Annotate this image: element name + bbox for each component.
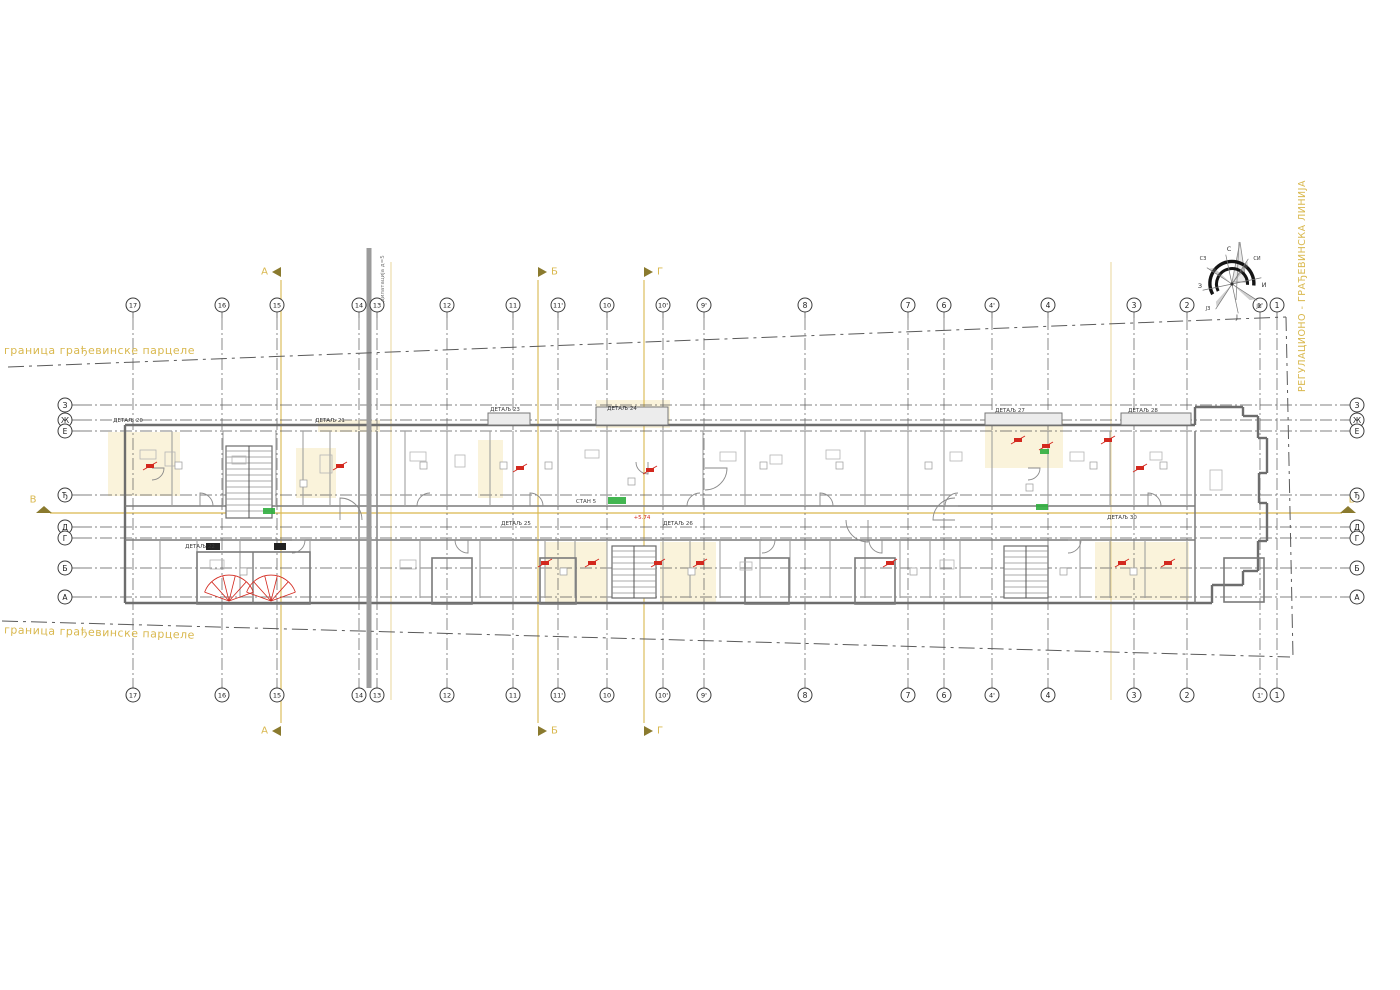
- section-arrow-icon: [272, 267, 281, 277]
- detail-callout-label: ДЕТАЉ 23: [490, 407, 520, 413]
- compass-direction-label: С: [1227, 245, 1232, 253]
- axis-bubble: Ђ: [1350, 488, 1364, 502]
- detail-callout-label: ДЕТАЉ 30: [1107, 515, 1137, 521]
- svg-text:З: З: [63, 401, 68, 410]
- svg-text:1: 1: [1275, 301, 1280, 310]
- section-arrow-icon: [538, 267, 547, 277]
- compass-direction-label: ЈИ: [1255, 304, 1261, 310]
- svg-text:14: 14: [355, 302, 363, 310]
- svg-text:15: 15: [273, 302, 281, 310]
- svg-text:Ђ: Ђ: [61, 491, 68, 500]
- axis-bubble: 13: [370, 688, 384, 702]
- axis-bubble: Б: [58, 561, 72, 575]
- axis-bubble: 2: [1180, 688, 1194, 702]
- section-arrow-icon: [644, 267, 653, 277]
- svg-text:11: 11: [509, 692, 517, 700]
- svg-text:14: 14: [355, 692, 363, 700]
- svg-text:Е: Е: [63, 427, 68, 436]
- axis-bubble: А: [58, 590, 72, 604]
- compass-direction-label: СЗ: [1200, 256, 1207, 262]
- svg-text:12: 12: [443, 692, 451, 700]
- svg-text:15: 15: [273, 692, 281, 700]
- svg-text:4: 4: [1046, 691, 1051, 700]
- compass-direction-label: Ј: [1235, 313, 1238, 321]
- axis-bubble: 16: [215, 688, 229, 702]
- green-highlight-mark: [1036, 504, 1048, 510]
- section-arrow-icon: [272, 726, 281, 736]
- stairwell: [1004, 546, 1048, 598]
- axis-bubble: 3: [1127, 688, 1141, 702]
- svg-text:13: 13: [373, 692, 381, 700]
- detail-callout-label: ДЕТАЉ 25: [501, 521, 531, 527]
- axis-bubble: 17: [126, 298, 140, 312]
- plumbing-riser-mark: [1133, 464, 1147, 472]
- axis-bubble: 11: [506, 688, 520, 702]
- drawing-canvas: ААББГГВВ 171716161515141413131212111111'…: [0, 0, 1400, 990]
- axis-bubble: 7: [901, 688, 915, 702]
- section-arrow-icon: [1340, 506, 1356, 513]
- svg-text:9': 9': [701, 692, 707, 700]
- axis-bubble: 4: [1041, 688, 1055, 702]
- axis-bubble: 8: [798, 298, 812, 312]
- axis-bubble: 4': [985, 688, 999, 702]
- axis-bubble: 11: [506, 298, 520, 312]
- axis-bubble: 1': [1253, 688, 1267, 702]
- plan-annotation-label: +5.74: [634, 515, 651, 521]
- svg-text:8: 8: [803, 691, 808, 700]
- detail-callout-label: ДЕТАЉ 22: [185, 544, 215, 550]
- parcel-boundary-label-top: граница грађевинске парцеле: [4, 344, 195, 357]
- svg-text:А: А: [62, 593, 68, 602]
- compass-direction-label: СИ: [1253, 256, 1260, 262]
- section-arrow-icon: [36, 506, 52, 513]
- section-letter: Г: [657, 726, 663, 737]
- axis-bubble: 11': [551, 688, 565, 702]
- svg-text:8: 8: [803, 301, 808, 310]
- axis-bubble: 2: [1180, 298, 1194, 312]
- axis-bubble: 6: [937, 688, 951, 702]
- plumbing-riser-mark: [643, 466, 657, 474]
- svg-text:6: 6: [942, 301, 947, 310]
- svg-text:3: 3: [1132, 691, 1137, 700]
- axis-bubble: 1: [1270, 298, 1284, 312]
- section-letter: А: [261, 267, 268, 278]
- svg-text:10: 10: [603, 302, 611, 310]
- axis-bubble: Г: [1350, 531, 1364, 545]
- svg-text:10: 10: [603, 692, 611, 700]
- axis-bubble: З: [1350, 398, 1364, 412]
- axis-bubble: 15: [270, 298, 284, 312]
- dilatation-joint-bar: [367, 248, 372, 688]
- svg-text:11': 11': [553, 692, 563, 700]
- svg-text:6: 6: [942, 691, 947, 700]
- section-letter: Б: [551, 726, 558, 737]
- axis-bubble: 12: [440, 298, 454, 312]
- svg-text:Б: Б: [62, 564, 67, 573]
- svg-text:16: 16: [218, 692, 226, 700]
- green-highlight-mark: [1040, 449, 1049, 454]
- axis-bubble: 8: [798, 688, 812, 702]
- svg-text:11': 11': [553, 302, 563, 310]
- svg-text:4': 4': [989, 302, 995, 310]
- svg-text:12: 12: [443, 302, 451, 310]
- detail-callout-label: ДЕТАЉ 21: [315, 418, 345, 424]
- axis-bubble: 9': [697, 688, 711, 702]
- svg-text:Б: Б: [1354, 564, 1359, 573]
- svg-text:11: 11: [509, 302, 517, 310]
- detail-callout-label: ДЕТАЉ 26: [663, 521, 693, 527]
- svg-text:Ђ: Ђ: [1353, 491, 1360, 500]
- axis-bubble: 10: [600, 688, 614, 702]
- svg-text:2: 2: [1185, 691, 1190, 700]
- detail-callout-label: ДЕТАЉ 27: [995, 408, 1025, 414]
- compass-direction-label: ЈЗ: [1205, 306, 1211, 312]
- axis-bubble: 15: [270, 688, 284, 702]
- axis-bubble: А: [1350, 590, 1364, 604]
- stairwell: [612, 546, 656, 598]
- svg-text:17: 17: [129, 692, 137, 700]
- axis-bubble: Е: [58, 424, 72, 438]
- svg-text:1: 1: [1275, 691, 1280, 700]
- svg-text:4: 4: [1046, 301, 1051, 310]
- detail-callout-label: ДЕТАЉ 20: [113, 418, 143, 424]
- green-highlight-mark: [608, 497, 626, 504]
- svg-text:7: 7: [906, 691, 911, 700]
- axis-bubble: 12: [440, 688, 454, 702]
- stairwell: [226, 446, 272, 518]
- svg-text:3: 3: [1132, 301, 1137, 310]
- axis-bubble: 10': [656, 688, 670, 702]
- svg-text:4': 4': [989, 692, 995, 700]
- compass-direction-label: З: [1198, 282, 1202, 290]
- axis-bubble: Ђ: [58, 488, 72, 502]
- plumbing-riser-mark: [1101, 436, 1115, 444]
- axis-bubble: 7: [901, 298, 915, 312]
- axis-bubble: 16: [215, 298, 229, 312]
- svg-text:Г: Г: [1355, 534, 1360, 543]
- svg-text:З: З: [1355, 401, 1360, 410]
- svg-text:10': 10': [658, 692, 668, 700]
- plumbing-riser-mark: [513, 464, 527, 472]
- axis-bubble: З: [58, 398, 72, 412]
- svg-text:А: А: [1354, 593, 1360, 602]
- dilatation-joint-label: дилатација д=5: [380, 255, 386, 302]
- axis-bubble: 9': [697, 298, 711, 312]
- section-arrow-icon: [644, 726, 653, 736]
- svg-text:7: 7: [906, 301, 911, 310]
- svg-text:9': 9': [701, 302, 707, 310]
- plan-annotation-label: СТАН 5: [576, 499, 596, 505]
- svg-text:13: 13: [373, 302, 381, 310]
- detail-callout-label: ДЕТАЉ 24: [607, 406, 637, 412]
- axis-bubble: 1: [1270, 688, 1284, 702]
- axis-bubble: 11': [551, 298, 565, 312]
- svg-text:10': 10': [658, 302, 668, 310]
- section-letter: А: [261, 726, 268, 737]
- axis-bubble: 17: [126, 688, 140, 702]
- compass-direction-label: И: [1262, 281, 1267, 289]
- floor-plan-drawing: ААББГГВВ 171716161515141413131212111111'…: [0, 0, 1400, 990]
- axis-bubble: Г: [58, 531, 72, 545]
- axis-bubble: 14: [352, 298, 366, 312]
- axis-bubble: 10: [600, 298, 614, 312]
- regulation-line-label: РЕГУЛАЦИОНО - ГРАЂЕВИНСКА ЛИНИЈА: [1297, 180, 1308, 392]
- svg-text:1': 1': [1257, 692, 1263, 700]
- axis-bubble: 14: [352, 688, 366, 702]
- svg-text:17: 17: [129, 302, 137, 310]
- section-letter: В: [30, 495, 37, 506]
- svg-text:16: 16: [218, 302, 226, 310]
- axis-bubble: Б: [1350, 561, 1364, 575]
- north-compass-icon: ССИИЈИЈЈЗЗСЗ: [1196, 242, 1267, 321]
- axis-bubble: 3: [1127, 298, 1141, 312]
- svg-text:2: 2: [1185, 301, 1190, 310]
- axis-bubble: 4: [1041, 298, 1055, 312]
- section-arrow-icon: [538, 726, 547, 736]
- svg-text:Е: Е: [1355, 427, 1360, 436]
- svg-text:Г: Г: [63, 534, 68, 543]
- axis-bubble: 6: [937, 298, 951, 312]
- axis-bubble: 4': [985, 298, 999, 312]
- parcel-boundary-lines: [2, 317, 1293, 657]
- section-letter: Г: [657, 267, 663, 278]
- section-letter: Б: [551, 267, 558, 278]
- axis-bubble: 10': [656, 298, 670, 312]
- detail-callout-label: ДЕТАЉ 28: [1128, 408, 1158, 414]
- green-highlight-mark: [263, 508, 275, 514]
- axis-bubble: Е: [1350, 424, 1364, 438]
